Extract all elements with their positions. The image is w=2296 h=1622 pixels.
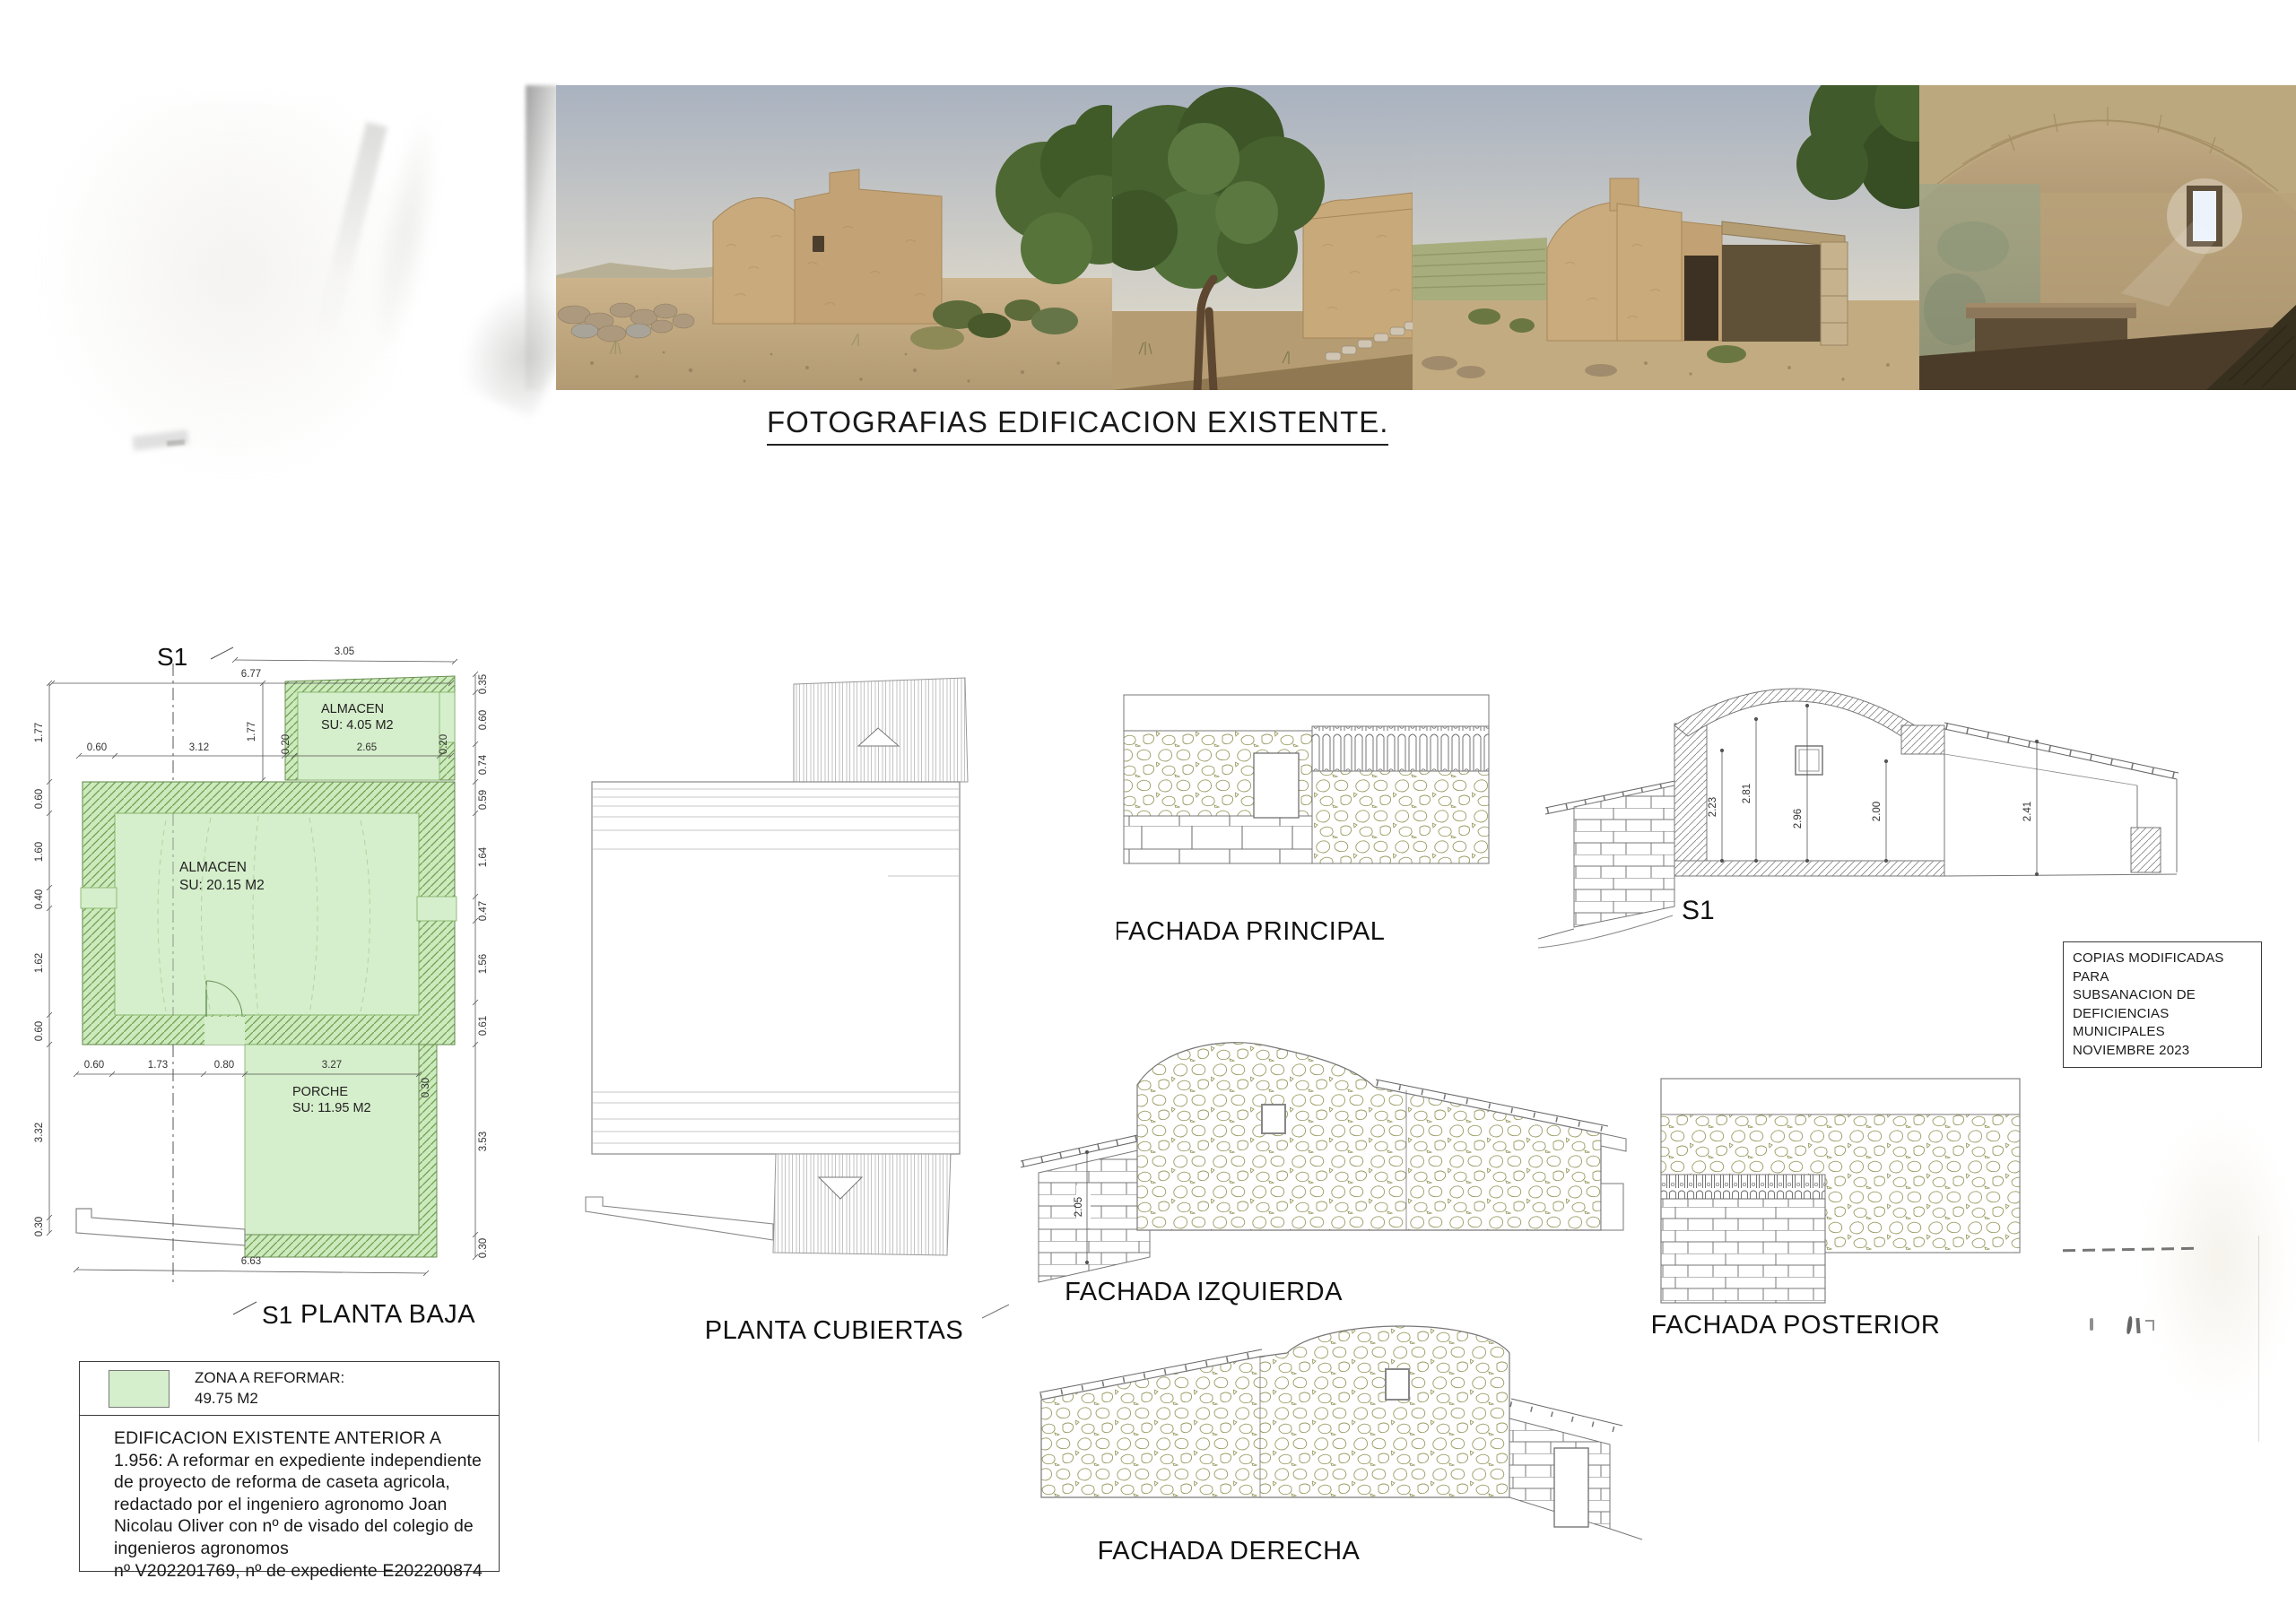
svg-text:1.64: 1.64 (478, 846, 489, 867)
svg-text:2.41: 2.41 (2022, 802, 2033, 821)
svg-text:1.56: 1.56 (478, 954, 489, 974)
note-line: ingenieros agronomos (114, 1538, 490, 1560)
fachada-izquierda-drawing: 2.05 FACHADA IZQUIERDA (1013, 1031, 1677, 1340)
svg-text:6.77: 6.77 (241, 669, 261, 680)
scan-scratch-line (2063, 1247, 2197, 1253)
planta-cubiertas-title: PLANTA CUBIERTAS (705, 1316, 963, 1345)
svg-text:SU: 4.05 M2: SU: 4.05 M2 (321, 718, 394, 733)
svg-text:0.80: 0.80 (214, 1060, 234, 1071)
svg-text:1.73: 1.73 (148, 1060, 168, 1071)
note-line: de proyecto de reforma de caseta agricol… (114, 1471, 490, 1494)
copias-modificadas-box: COPIAS MODIFICADAS PARA SUBSANACION DE D… (2063, 941, 2262, 1068)
seccion-s1-drawing: 2.23 2.81 2.96 2.00 2.41 S1 (1538, 668, 2202, 973)
sheet-canvas: FOTOGRAFIAS EDIFICACION EXISTENTE. (0, 0, 2296, 1622)
svg-text:1.77: 1.77 (247, 722, 257, 742)
svg-text:2.65: 2.65 (357, 742, 377, 753)
svg-text:1.77: 1.77 (34, 723, 45, 742)
section-label-top: S1 (157, 643, 187, 671)
svg-text:0.60: 0.60 (84, 1060, 104, 1071)
svg-text:SU: 11.95 M2: SU: 11.95 M2 (292, 1101, 371, 1115)
photo-edge-shadow (526, 85, 560, 390)
svg-text:0.61: 0.61 (478, 1016, 489, 1036)
photo-interior-vault (1919, 85, 2296, 390)
legend-value: 49.75 M2 (195, 1389, 344, 1409)
photo-exterior-tree (1112, 85, 1413, 390)
svg-text:ALMACEN: ALMACEN (321, 702, 384, 716)
scan-mark (167, 439, 185, 447)
legend-title: ZONA A REFORMAR: (195, 1368, 344, 1389)
notes-box: EDIFICACION EXISTENTE ANTERIOR A 1.956: … (79, 1415, 500, 1572)
svg-text:0.59: 0.59 (478, 790, 489, 810)
section-dimensions (1720, 704, 2038, 875)
svg-text:1.60: 1.60 (34, 842, 45, 862)
legend-box: ZONA A REFORMAR: 49.75 M2 (79, 1361, 500, 1417)
fachada-izquierda-title: FACHADA IZQUIERDA (1065, 1278, 1343, 1306)
svg-text:3.12: 3.12 (189, 742, 209, 753)
fachada-derecha-drawing: FACHADA DERECHA (1036, 1314, 1664, 1614)
svg-text:2.81: 2.81 (1742, 784, 1752, 803)
fachada-derecha-title: FACHADA DERECHA (1098, 1537, 1361, 1566)
svg-text:ALMACEN: ALMACEN (179, 860, 247, 875)
scan-ink-mark (2135, 1318, 2140, 1333)
scan-smudge (36, 99, 395, 484)
svg-text:2.05: 2.05 (1074, 1197, 1084, 1217)
svg-text:3.32: 3.32 (34, 1123, 45, 1142)
svg-text:1.62: 1.62 (34, 953, 45, 973)
photos-title: FOTOGRAFIAS EDIFICACION EXISTENTE. (767, 405, 1388, 446)
svg-text:0.60: 0.60 (87, 742, 107, 753)
building (1303, 193, 1413, 338)
seccion-label: S1 (1682, 896, 1715, 925)
fachada-posterior-title: FACHADA POSTERIOR (1651, 1311, 1941, 1340)
scan-faint-line (2258, 1236, 2259, 1442)
svg-text:SU: 20.15 M2: SU: 20.15 M2 (179, 878, 265, 893)
scan-ink-mark (2090, 1318, 2093, 1331)
planta-cubiertas-drawing: PLANTA CUBIERTAS (565, 659, 1013, 1358)
legend-green-swatch (109, 1370, 170, 1408)
svg-text:PORCHE: PORCHE (292, 1085, 348, 1099)
copias-line: DEFICIENCIAS MUNICIPALES (2073, 1005, 2252, 1042)
svg-text:0.30: 0.30 (34, 1217, 45, 1236)
svg-text:2.23: 2.23 (1708, 797, 1718, 817)
svg-text:0.47: 0.47 (478, 901, 489, 921)
svg-text:0.30: 0.30 (478, 1238, 489, 1258)
svg-text:6.63: 6.63 (241, 1256, 261, 1267)
svg-text:0.20: 0.20 (281, 734, 291, 754)
svg-text:2.96: 2.96 (1793, 809, 1804, 828)
planta-baja-title: PLANTA BAJA (300, 1300, 475, 1329)
fachada-principal-title: FACHADA PRINCIPAL (1117, 917, 1385, 946)
fachada-posterior-drawing: FACHADA POSTERIOR (1650, 1067, 2036, 1345)
photo-exterior-porch (1413, 85, 1919, 390)
scan-mark (132, 429, 188, 450)
copias-line: SUBSANACION DE (2073, 986, 2252, 1005)
fachada-principal-drawing: FACHADA PRINCIPAL (1117, 686, 1565, 964)
svg-text:3.05: 3.05 (335, 646, 354, 657)
scan-streak (312, 122, 387, 344)
scan-ink-mark (2145, 1320, 2154, 1331)
svg-text:0.20: 0.20 (439, 734, 449, 754)
svg-text:0.60: 0.60 (34, 1021, 45, 1041)
svg-text:0.40: 0.40 (34, 889, 45, 909)
note-line: EDIFICACION EXISTENTE ANTERIOR A (114, 1427, 490, 1450)
svg-text:0.35: 0.35 (478, 674, 489, 694)
note-line: nº V202201769, nº de expediente E2022008… (114, 1560, 490, 1583)
section-label-bottom: S1 (262, 1301, 292, 1329)
svg-text:0.30: 0.30 (421, 1078, 431, 1097)
copias-line: COPIAS MODIFICADAS PARA (2073, 950, 2252, 986)
svg-text:2.00: 2.00 (1872, 802, 1883, 821)
planta-baja-drawing: 3.05 6.77 1.77 1.77 0.60 1.60 0.40 1.62 … (27, 637, 511, 1336)
photo-exterior-front (556, 85, 1112, 390)
svg-text:3.27: 3.27 (322, 1060, 342, 1071)
scan-ink-mark (2126, 1316, 2134, 1335)
scan-smudge (2144, 1112, 2296, 1408)
svg-text:0.60: 0.60 (478, 710, 489, 730)
note-line: Nicolau Oliver con nº de visado del cole… (114, 1515, 490, 1538)
scan-streak (360, 105, 452, 360)
note-line: 1.956: A reformar en expediente independ… (114, 1450, 490, 1472)
svg-text:3.53: 3.53 (478, 1132, 489, 1151)
svg-text:0.74: 0.74 (478, 754, 489, 775)
note-line: redactado por el ingeniero agronomo Joan (114, 1494, 490, 1516)
svg-text:0.60: 0.60 (34, 789, 45, 809)
copias-line: NOVIEMBRE 2023 (2073, 1042, 2252, 1061)
